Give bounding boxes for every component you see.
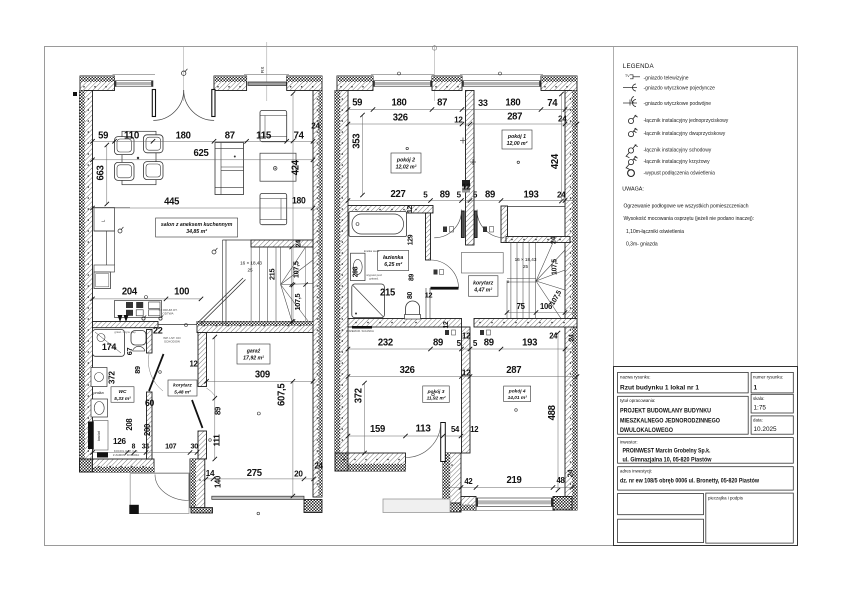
- svg-text:LEGENDA: LEGENDA: [623, 63, 655, 70]
- svg-text:140: 140: [214, 475, 223, 488]
- svg-text:215: 215: [268, 269, 277, 280]
- svg-text:87: 87: [437, 98, 448, 109]
- svg-text:PROINWEST Marcin Grobelny Sp.k: PROINWEST Marcin Grobelny Sp.k.: [623, 448, 711, 455]
- svg-text:-łącznik instalacyjny dwuprzyc: -łącznik instalacyjny dwuprzyciskowy: [644, 131, 726, 137]
- svg-text:numer rysunku:: numer rysunku:: [753, 374, 783, 379]
- svg-text:12: 12: [443, 321, 450, 328]
- svg-text:10.2025: 10.2025: [754, 426, 778, 433]
- svg-text:6,25 m²: 6,25 m²: [384, 262, 402, 268]
- svg-text:89: 89: [484, 338, 495, 349]
- svg-text:pralka: pralka: [92, 391, 103, 395]
- svg-text:-gniazdo wtyczkowe pojedyncze: -gniazdo wtyczkowe pojedyncze: [644, 86, 716, 92]
- svg-text:12,02 m²: 12,02 m²: [396, 164, 417, 170]
- svg-text:159: 159: [370, 424, 386, 435]
- svg-text:ul. Gimnazjalna 10, 05-820 Pia: ul. Gimnazjalna 10, 05-820 Piastów: [623, 456, 712, 463]
- svg-text:-łącznik instalacyjny krzyżowy: -łącznik instalacyjny krzyżowy: [644, 159, 711, 165]
- svg-text:24: 24: [557, 189, 566, 199]
- svg-text:625: 625: [194, 148, 210, 159]
- svg-text:424: 424: [291, 160, 302, 176]
- svg-text:232: 232: [378, 338, 394, 349]
- svg-text:48: 48: [557, 476, 566, 485]
- svg-text:1: 1: [754, 385, 758, 392]
- svg-text:107,5: 107,5: [293, 294, 302, 311]
- svg-text:309: 309: [255, 370, 271, 381]
- svg-text:17,92 m²: 17,92 m²: [243, 355, 264, 361]
- svg-text:12: 12: [190, 360, 199, 369]
- svg-text:24: 24: [311, 121, 320, 131]
- svg-text:4,47 m²: 4,47 m²: [473, 287, 492, 293]
- svg-text:180: 180: [392, 98, 408, 109]
- svg-text:adres inwestycji:: adres inwestycji:: [620, 469, 652, 474]
- svg-text:89: 89: [440, 189, 451, 200]
- svg-text:326: 326: [393, 113, 409, 124]
- svg-text:-łącznik instalacyjny jednoprz: -łącznik instalacyjny jednoprzyciskowy: [644, 118, 729, 124]
- svg-text:pieczątka i podpis: pieczątka i podpis: [708, 495, 744, 500]
- svg-text:kocioł: kocioł: [97, 431, 101, 441]
- svg-text:16 × 18,43: 16 × 18,43: [515, 257, 537, 262]
- svg-text:129: 129: [407, 234, 414, 245]
- svg-text:215: 215: [380, 288, 396, 299]
- svg-text:skala:: skala:: [753, 396, 764, 401]
- svg-text:12: 12: [470, 425, 479, 434]
- svg-text:445: 445: [164, 197, 180, 208]
- svg-text:-gniazdo telewizyjne: -gniazdo telewizyjne: [644, 75, 689, 81]
- svg-text:488: 488: [547, 405, 558, 421]
- svg-text:SCHODOW: SCHODOW: [164, 340, 180, 344]
- svg-text:12,00 m²: 12,00 m²: [507, 141, 528, 147]
- svg-text:113: 113: [416, 424, 432, 435]
- svg-text:pokój 2: pokój 2: [396, 158, 415, 164]
- svg-text:12: 12: [462, 182, 471, 192]
- svg-text:89: 89: [214, 406, 223, 415]
- svg-text:80: 80: [407, 292, 414, 299]
- svg-text:c.o.: c.o.: [337, 334, 342, 338]
- svg-text:TV: TV: [625, 74, 630, 78]
- svg-text:pokój 4: pokój 4: [508, 388, 526, 394]
- svg-text:287: 287: [507, 112, 523, 123]
- svg-text:372: 372: [354, 388, 365, 404]
- svg-text:107,5: 107,5: [291, 261, 300, 278]
- svg-text:208: 208: [125, 418, 134, 431]
- svg-text:607,5: 607,5: [277, 383, 288, 406]
- svg-text:298: 298: [353, 266, 360, 277]
- svg-text:8: 8: [132, 443, 136, 450]
- svg-text:22: 22: [153, 326, 163, 337]
- svg-text:59: 59: [352, 98, 363, 109]
- svg-text:275: 275: [247, 468, 263, 479]
- svg-text:5,48 m²: 5,48 m²: [174, 389, 191, 395]
- svg-text:16 × 18,43: 16 × 18,43: [240, 261, 262, 266]
- svg-text:111: 111: [213, 434, 222, 447]
- svg-text:korytarz: korytarz: [473, 281, 494, 287]
- svg-text:33: 33: [142, 443, 149, 450]
- svg-text:5,33 m²: 5,33 m²: [114, 396, 131, 402]
- svg-text:garaż: garaż: [246, 349, 261, 355]
- svg-text:424: 424: [550, 153, 561, 169]
- svg-text:łazienka: łazienka: [383, 255, 403, 261]
- svg-text:204: 204: [122, 286, 138, 297]
- svg-text:107,5: 107,5: [552, 259, 559, 275]
- svg-text:89: 89: [133, 366, 142, 374]
- svg-text:174: 174: [102, 342, 117, 353]
- svg-text:372: 372: [107, 371, 117, 384]
- svg-text:20: 20: [294, 469, 303, 479]
- svg-text:0,3m- gniazda: 0,3m- gniazda: [626, 242, 658, 248]
- svg-text:PROJEKT BUDOWLANY BUDYNKU: PROJEKT BUDOWLANY BUDYNKU: [620, 408, 711, 415]
- svg-text:12: 12: [454, 115, 463, 125]
- svg-text:data:: data:: [753, 418, 763, 423]
- svg-text:-gniazdo wtyczkowe podwójne: -gniazdo wtyczkowe podwójne: [644, 101, 712, 107]
- svg-text:287: 287: [506, 365, 522, 376]
- svg-text:54: 54: [451, 425, 460, 434]
- svg-text:tytuł opracowania:: tytuł opracowania:: [620, 398, 655, 403]
- svg-text:24: 24: [551, 237, 558, 244]
- svg-text:MIESZKALNEGO JEDNORODZINNEGO: MIESZKALNEGO JEDNORODZINNEGO: [620, 418, 720, 425]
- svg-text:dz. nr ew 108/5 obręb 0006 ul.: dz. nr ew 108/5 obręb 0006 ul. Bronetty,…: [620, 478, 759, 485]
- svg-text:UWAGA:: UWAGA:: [622, 187, 644, 193]
- svg-text:25: 25: [523, 264, 529, 269]
- svg-text:87: 87: [225, 130, 236, 141]
- svg-text:60: 60: [145, 398, 154, 408]
- svg-text:1,10m-łączniki oświetlenia: 1,10m-łączniki oświetlenia: [626, 229, 684, 235]
- svg-text:12: 12: [425, 291, 433, 300]
- svg-text:34,85 m²: 34,85 m²: [186, 229, 207, 235]
- svg-text:11,92 m²: 11,92 m²: [427, 396, 446, 402]
- svg-text:227: 227: [391, 189, 407, 200]
- svg-text:DWULOKALOWEGO: DWULOKALOWEGO: [620, 427, 673, 434]
- svg-text:5: 5: [457, 338, 462, 348]
- svg-text:5: 5: [457, 189, 462, 199]
- svg-text:67: 67: [125, 348, 134, 356]
- svg-text:FIX: FIX: [260, 67, 265, 74]
- svg-text:1:75: 1:75: [754, 404, 767, 411]
- svg-text:193: 193: [524, 189, 540, 200]
- svg-text:25: 25: [247, 268, 253, 273]
- svg-text:180: 180: [176, 130, 192, 141]
- svg-text:Rzut budynku 1 lokal nr 1: Rzut budynku 1 lokal nr 1: [620, 384, 699, 391]
- svg-text:12: 12: [462, 331, 471, 341]
- svg-text:12: 12: [462, 368, 471, 378]
- svg-text:nazwa rysunku:: nazwa rysunku:: [620, 374, 651, 379]
- svg-text:326: 326: [400, 365, 416, 376]
- svg-text:89: 89: [409, 274, 416, 281]
- svg-text:353: 353: [352, 133, 363, 149]
- svg-text:59: 59: [98, 130, 109, 141]
- svg-text:219: 219: [507, 475, 523, 486]
- svg-text:180: 180: [505, 98, 521, 109]
- svg-text:30: 30: [191, 441, 199, 450]
- svg-text:24: 24: [569, 334, 576, 341]
- svg-text:5: 5: [473, 189, 478, 199]
- svg-text:89: 89: [433, 338, 444, 349]
- svg-text:33: 33: [478, 98, 488, 109]
- svg-text:5: 5: [473, 338, 478, 348]
- svg-text:14,01 m²: 14,01 m²: [508, 395, 528, 401]
- svg-text:110: 110: [124, 130, 140, 141]
- svg-text:pokój 3: pokój 3: [427, 389, 445, 395]
- svg-text:ODTWA: ODTWA: [162, 312, 173, 316]
- svg-text:126: 126: [113, 436, 126, 446]
- svg-text:107: 107: [165, 441, 176, 450]
- svg-text:24: 24: [314, 461, 323, 471]
- svg-text:gniazd.: gniazd.: [369, 277, 379, 281]
- svg-text:74: 74: [294, 130, 305, 141]
- svg-text:12: 12: [407, 206, 414, 213]
- svg-text:Wysokość mocowania osprzętu (j: Wysokość mocowania osprzętu (jeżeli nie …: [624, 216, 755, 222]
- svg-text:75: 75: [517, 302, 526, 311]
- svg-text:89: 89: [485, 189, 496, 200]
- svg-text:salon z aneksem kuchennym: salon z aneksem kuchennym: [161, 222, 233, 228]
- svg-text:74: 74: [547, 98, 558, 109]
- svg-text:Ogrzewanie podłogowe we wszyst: Ogrzewanie podłogowe we wszystkich pomie…: [624, 204, 749, 210]
- svg-text:24: 24: [558, 114, 567, 124]
- svg-text:korytarz: korytarz: [173, 383, 192, 389]
- svg-text:42: 42: [464, 477, 473, 486]
- svg-text:24: 24: [296, 240, 303, 247]
- svg-text:inwestor:: inwestor:: [620, 439, 638, 444]
- svg-text:663: 663: [96, 165, 107, 181]
- svg-text:193: 193: [522, 338, 538, 349]
- svg-text:WC: WC: [119, 389, 128, 395]
- svg-text:100: 100: [174, 286, 190, 297]
- svg-text:180: 180: [292, 196, 306, 206]
- svg-text:kratka went.: kratka went.: [364, 249, 380, 253]
- svg-text:PRZEMUR. SCIANKA: PRZEMUR. SCIANKA: [346, 329, 374, 333]
- svg-text:-łącznik instalacyjny schodowy: -łącznik instalacyjny schodowy: [644, 148, 712, 154]
- svg-text:pokój 1: pokój 1: [507, 134, 526, 140]
- svg-text:-wypust podłączenia oświetleni: -wypust podłączenia oświetlenia: [644, 171, 716, 177]
- svg-text:200: 200: [143, 423, 152, 436]
- svg-text:115: 115: [256, 130, 272, 141]
- svg-text:24: 24: [549, 332, 558, 341]
- svg-text:5: 5: [423, 189, 428, 199]
- svg-text:gniaz. zmyw. cap: gniaz. zmyw. cap: [114, 330, 136, 334]
